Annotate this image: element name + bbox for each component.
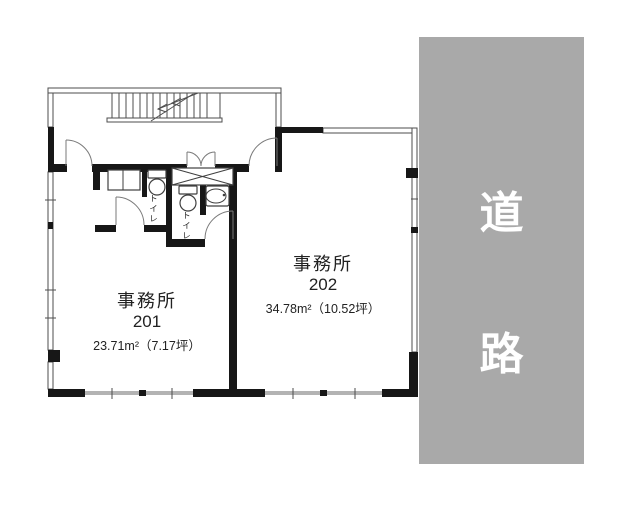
shaft-x-box <box>172 168 233 185</box>
office-201-label: 事務所 201 23.71m²（7.17坪） <box>80 292 214 354</box>
counter-unit <box>108 170 140 190</box>
office-202-name: 事務所 <box>256 255 390 275</box>
floor-plan-page: 道 路 <box>0 0 622 530</box>
double-door-hall <box>187 152 215 166</box>
window-band-bottom-left <box>85 388 193 399</box>
door-toilet-2 <box>205 211 233 239</box>
toilet-icon-1 <box>148 170 166 195</box>
washbasin-icon <box>206 186 229 206</box>
door-office201 <box>66 140 92 166</box>
window-band-bottom-right <box>265 388 382 399</box>
office-201-name: 事務所 <box>80 292 214 312</box>
office-201-number: 201 <box>80 312 214 332</box>
staircase <box>107 93 222 122</box>
door-office202 <box>249 138 277 166</box>
office-202-area: 34.78m²（10.52坪） <box>256 298 390 317</box>
office-202-number: 202 <box>256 275 390 295</box>
door-toilet-1 <box>116 197 144 225</box>
toilet-icon-2 <box>179 186 197 211</box>
toilet-2-label: トイレ <box>182 211 191 241</box>
office-202-label: 事務所 202 34.78m²（10.52坪） <box>256 255 390 317</box>
office-201-area: 23.71m²（7.17坪） <box>80 335 214 354</box>
toilet-1-label: トイレ <box>149 194 158 224</box>
